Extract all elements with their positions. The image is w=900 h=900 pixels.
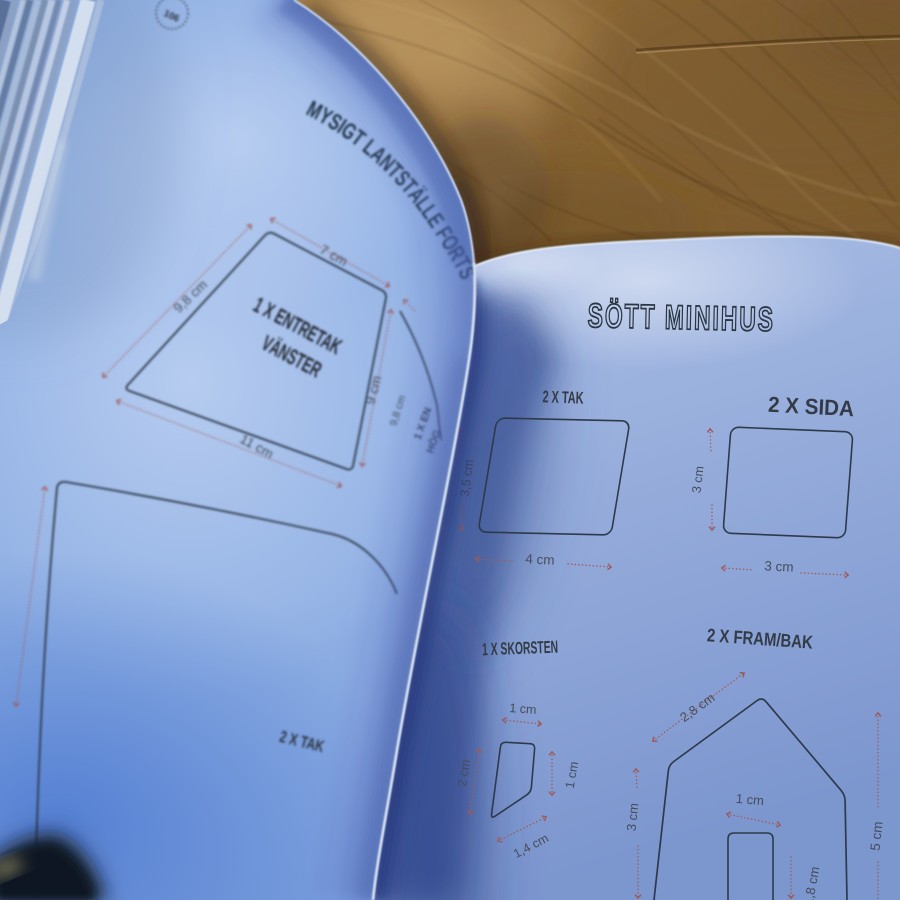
svg-text:3 cm: 3 cm (624, 802, 642, 832)
svg-text:2 X TAK: 2 X TAK (542, 387, 584, 407)
svg-text:4 cm: 4 cm (525, 551, 555, 568)
svg-text:1 X SKORSTEN: 1 X SKORSTEN (482, 637, 559, 660)
svg-text:SÖTT MINIHUS: SÖTT MINIHUS (587, 297, 775, 339)
svg-text:2 X SIDA: 2 X SIDA (767, 392, 854, 421)
svg-text:1 cm: 1 cm (735, 791, 764, 808)
svg-text:3 cm: 3 cm (764, 558, 794, 575)
svg-text:1 cm: 1 cm (509, 701, 537, 717)
svg-text:5 cm: 5 cm (868, 821, 886, 852)
